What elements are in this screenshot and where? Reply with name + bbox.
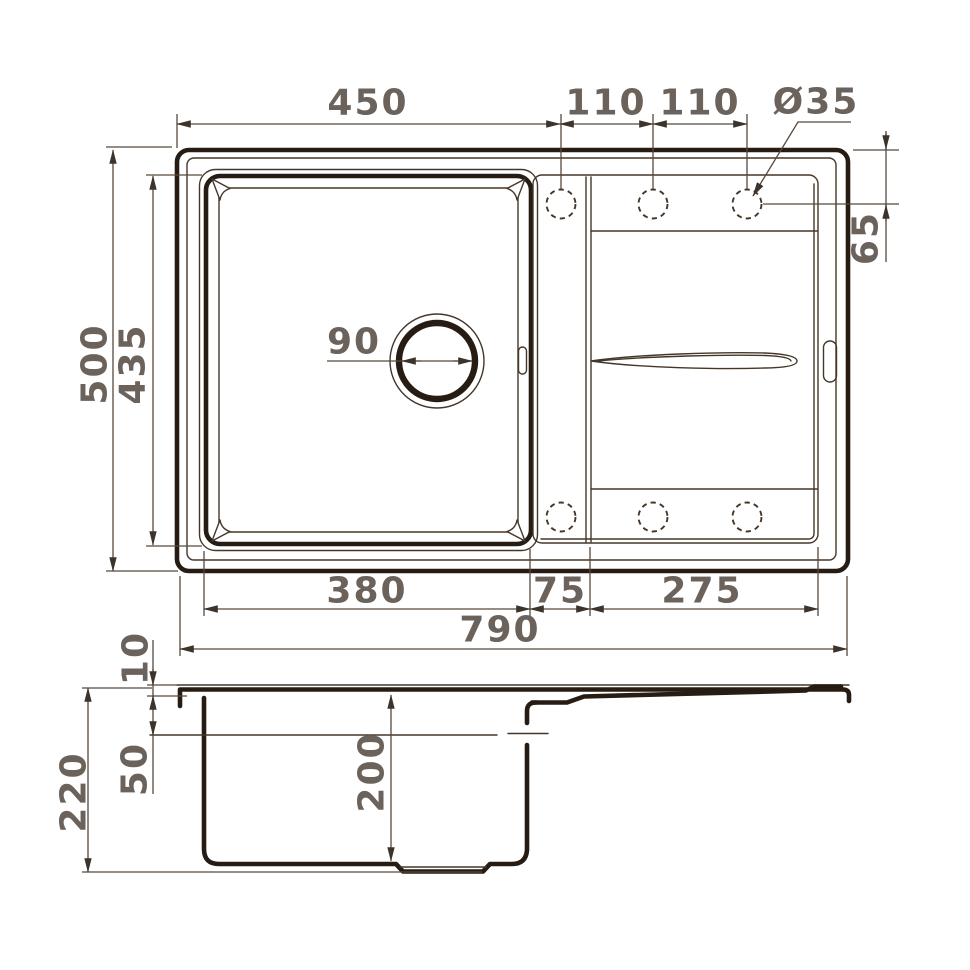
side-profile — [150, 685, 849, 872]
rim-slot — [824, 341, 837, 382]
dim-label-50: 50 — [115, 742, 156, 796]
drainboard — [533, 175, 837, 543]
dim-label-65: 65 — [846, 211, 887, 265]
bowl-corner-chamfer — [212, 179, 230, 200]
tap-holes — [547, 190, 762, 532]
drainboard-panel — [533, 175, 818, 543]
drainboard-groove-inner-line — [598, 355, 791, 361]
dim-label-200: 200 — [352, 731, 393, 812]
dim-label-10: 10 — [116, 631, 157, 685]
dim-label-380: 380 — [326, 571, 407, 612]
tap-hole — [733, 503, 762, 532]
tap-hole — [639, 503, 668, 532]
side-view: 10 50 220 200 — [54, 631, 850, 872]
bowl-corner-chamfer — [507, 520, 525, 541]
dim-label-450: 450 — [327, 83, 408, 124]
sink-technical-drawing: 450 110 110 Ø35 65 500 435 90 380 75 275… — [0, 0, 970, 970]
overflow-slot — [519, 347, 527, 374]
sink-outline — [177, 150, 848, 571]
dim-label-220: 220 — [54, 751, 95, 832]
side-view-dimensions: 10 50 220 200 — [54, 631, 483, 872]
tap-hole — [547, 503, 576, 532]
tap-hole — [547, 190, 576, 219]
top-view: 450 110 110 Ø35 65 500 435 90 380 75 275… — [75, 82, 900, 657]
tap-hole — [639, 190, 668, 219]
sink-outer-edge — [177, 150, 848, 571]
dim-label-500: 500 — [75, 323, 116, 404]
tap-hole — [733, 190, 762, 219]
dim-label-275: 275 — [661, 571, 742, 612]
dim-label-790: 790 — [459, 610, 540, 651]
drawing-canvas: 450 110 110 Ø35 65 500 435 90 380 75 275… — [0, 0, 970, 970]
dim-label-110-b: 110 — [659, 83, 740, 124]
drainboard-panel-inner-line — [541, 184, 814, 539]
bowl-corner-chamfer — [212, 520, 230, 541]
dim-label-90: 90 — [327, 322, 381, 363]
dim-label-hole-diameter: Ø35 — [773, 82, 860, 123]
dim-label-110-a: 110 — [565, 83, 646, 124]
bowl-corner-chamfer — [507, 179, 525, 200]
dim-label-435: 435 — [113, 323, 154, 404]
sink-rim-inner-edge — [187, 158, 836, 560]
dim-label-75: 75 — [533, 571, 587, 612]
